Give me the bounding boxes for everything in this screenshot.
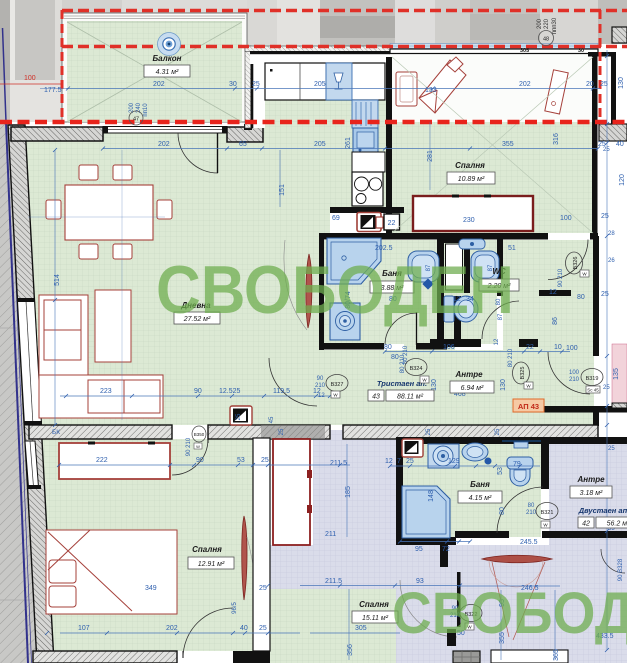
svg-text:90: 90 xyxy=(196,457,204,464)
svg-text:86: 86 xyxy=(552,317,559,325)
svg-text:B350: B350 xyxy=(194,432,205,437)
svg-text:B327: B327 xyxy=(331,382,344,388)
svg-text:25: 25 xyxy=(259,625,267,632)
svg-text:12.525: 12.525 xyxy=(219,388,241,395)
svg-text:4.15 м²: 4.15 м² xyxy=(469,495,492,502)
svg-text:Спалня: Спалня xyxy=(192,545,222,554)
svg-text:202: 202 xyxy=(158,141,170,148)
svg-text:3.18 м²: 3.18 м² xyxy=(580,490,603,497)
svg-text:25: 25 xyxy=(601,213,609,220)
svg-text:B319: B319 xyxy=(586,376,599,382)
svg-text:СВОБОД: СВОБОД xyxy=(392,581,627,646)
svg-text:355: 355 xyxy=(502,141,514,148)
svg-text:25: 25 xyxy=(603,385,610,391)
svg-text:56.2 м²: 56.2 м² xyxy=(607,521,627,528)
svg-text:100: 100 xyxy=(569,370,580,376)
svg-text:305: 305 xyxy=(355,625,367,632)
svg-text:365: 365 xyxy=(553,649,560,661)
svg-text:80: 80 xyxy=(384,344,392,351)
svg-text:210: 210 xyxy=(569,377,580,383)
svg-text:47: 47 xyxy=(133,117,139,123)
svg-text:Баня: Баня xyxy=(470,480,490,489)
svg-text:53: 53 xyxy=(237,457,245,464)
svg-text:130: 130 xyxy=(431,379,438,391)
svg-text:B325: B325 xyxy=(520,367,526,380)
svg-text:230: 230 xyxy=(463,217,475,224)
svg-text:B321: B321 xyxy=(541,510,554,516)
svg-text:25: 25 xyxy=(406,458,414,465)
svg-text:26: 26 xyxy=(608,258,615,264)
svg-text:48: 48 xyxy=(543,37,549,43)
svg-text:177.5: 177.5 xyxy=(44,87,62,94)
svg-text:25: 25 xyxy=(236,413,242,420)
svg-text:120: 120 xyxy=(619,174,626,186)
svg-text:51: 51 xyxy=(508,245,516,252)
svg-text:Sc 45: Sc 45 xyxy=(587,388,599,393)
svg-text:148: 148 xyxy=(428,490,435,502)
svg-text:119.5: 119.5 xyxy=(273,388,290,395)
svg-text:220: 220 xyxy=(544,18,550,29)
svg-text:25: 25 xyxy=(603,147,610,153)
svg-text:6.94 м²: 6.94 м² xyxy=(461,385,484,392)
svg-text:W: W xyxy=(196,444,200,449)
svg-text:АП 43: АП 43 xyxy=(518,402,539,411)
svg-text:42: 42 xyxy=(582,521,590,528)
svg-text:90: 90 xyxy=(194,388,202,395)
svg-text:ппп30: ппп30 xyxy=(552,17,558,34)
svg-text:79: 79 xyxy=(513,461,521,468)
svg-text:45: 45 xyxy=(269,416,275,423)
svg-text:261: 261 xyxy=(345,137,352,149)
svg-text:25: 25 xyxy=(279,428,285,435)
svg-text:202: 202 xyxy=(166,625,178,632)
svg-text:30: 30 xyxy=(229,81,237,88)
svg-text:80 210: 80 210 xyxy=(400,354,406,373)
svg-text:12.91 м²: 12.91 м² xyxy=(198,561,225,568)
svg-text:12: 12 xyxy=(494,338,500,345)
svg-text:211: 211 xyxy=(325,531,336,538)
svg-text:Двустаен ап.: Двустаен ап. xyxy=(578,506,627,515)
svg-text:202: 202 xyxy=(519,81,531,88)
svg-text:20: 20 xyxy=(586,81,594,88)
svg-text:30: 30 xyxy=(578,48,584,54)
svg-text:211.5: 211.5 xyxy=(330,460,347,467)
svg-text:133: 133 xyxy=(425,87,437,94)
svg-text:12: 12 xyxy=(318,393,325,399)
svg-text:90 210: 90 210 xyxy=(558,268,564,287)
svg-text:69: 69 xyxy=(332,215,340,222)
svg-text:106: 106 xyxy=(443,344,455,351)
svg-text:100: 100 xyxy=(560,215,572,222)
svg-text:130: 130 xyxy=(618,77,625,89)
svg-text:10.89 м²: 10.89 м² xyxy=(458,176,485,183)
svg-text:25: 25 xyxy=(601,291,609,298)
svg-text:211.5: 211.5 xyxy=(325,578,342,585)
svg-text:43: 43 xyxy=(372,394,380,401)
svg-text:202.5: 202.5 xyxy=(375,245,393,252)
svg-text:22: 22 xyxy=(526,344,534,351)
svg-text:200: 200 xyxy=(537,18,543,29)
svg-text:130: 130 xyxy=(500,379,507,391)
svg-text:40: 40 xyxy=(616,141,624,148)
svg-text:80: 80 xyxy=(528,503,535,509)
svg-text:107: 107 xyxy=(78,625,90,632)
svg-text:53: 53 xyxy=(497,467,504,475)
svg-text:80: 80 xyxy=(577,294,585,301)
svg-text:129: 129 xyxy=(448,458,460,465)
svg-text:72: 72 xyxy=(442,546,450,553)
svg-text:10: 10 xyxy=(554,344,562,351)
svg-text:100: 100 xyxy=(24,75,36,82)
svg-text:205: 205 xyxy=(314,141,326,148)
svg-text:135: 135 xyxy=(613,368,620,380)
svg-text:185: 185 xyxy=(345,486,352,498)
svg-text:БК: БК xyxy=(52,429,60,436)
svg-text:80 210: 80 210 xyxy=(508,348,514,367)
svg-text:25: 25 xyxy=(261,457,269,464)
svg-text:пп10: пп10 xyxy=(143,103,149,117)
svg-text:80: 80 xyxy=(391,354,399,361)
svg-text:95: 95 xyxy=(415,546,423,553)
svg-text:B324: B324 xyxy=(410,366,423,372)
svg-text:349: 349 xyxy=(145,585,157,592)
svg-text:22: 22 xyxy=(388,220,396,227)
svg-text:Спалня: Спалня xyxy=(359,600,389,609)
svg-text:88.11 м²: 88.11 м² xyxy=(397,394,424,401)
svg-text:202: 202 xyxy=(153,81,165,88)
svg-text:90 210: 90 210 xyxy=(186,437,192,456)
svg-text:Тристаен ап.: Тристаен ап. xyxy=(377,379,427,388)
svg-text:90 B328: 90 B328 xyxy=(618,558,624,581)
svg-text:25: 25 xyxy=(252,81,260,88)
svg-text:245.5: 245.5 xyxy=(520,539,538,546)
svg-text:356: 356 xyxy=(347,644,354,656)
svg-text:65: 65 xyxy=(239,141,247,148)
svg-text:7: 7 xyxy=(397,458,401,465)
svg-text:25: 25 xyxy=(495,428,501,435)
svg-text:210: 210 xyxy=(315,383,326,389)
svg-text:B326: B326 xyxy=(573,257,579,270)
svg-text:25: 25 xyxy=(259,585,267,592)
svg-text:205: 205 xyxy=(314,81,326,88)
svg-text:514: 514 xyxy=(54,274,61,286)
svg-text:90: 90 xyxy=(317,376,324,382)
svg-text:12: 12 xyxy=(385,458,393,465)
svg-text:25: 25 xyxy=(426,428,432,435)
svg-text:25: 25 xyxy=(608,446,615,452)
svg-text:305: 305 xyxy=(520,48,529,54)
svg-text:12: 12 xyxy=(549,289,557,296)
svg-text:222: 222 xyxy=(96,457,108,464)
svg-text:151: 151 xyxy=(279,184,286,196)
svg-text:80: 80 xyxy=(499,507,506,515)
svg-text:96/5: 96/5 xyxy=(232,602,238,614)
svg-text:28: 28 xyxy=(608,231,615,237)
svg-text:4.31 м²: 4.31 м² xyxy=(156,69,179,76)
svg-text:Антре: Антре xyxy=(576,475,605,484)
svg-text:Спалня: Спалня xyxy=(455,161,485,170)
svg-text:223: 223 xyxy=(100,388,112,395)
svg-text:25: 25 xyxy=(600,81,608,88)
svg-text:281: 281 xyxy=(427,150,434,162)
svg-text:Антре: Антре xyxy=(454,370,483,379)
svg-text:40: 40 xyxy=(240,625,248,632)
svg-text:210: 210 xyxy=(526,510,537,516)
svg-text:15.11 м²: 15.11 м² xyxy=(362,615,389,622)
svg-text:100: 100 xyxy=(566,345,578,352)
svg-text:СВОБОДЕН: СВОБОДЕН xyxy=(156,252,514,328)
svg-text:316: 316 xyxy=(553,133,560,145)
